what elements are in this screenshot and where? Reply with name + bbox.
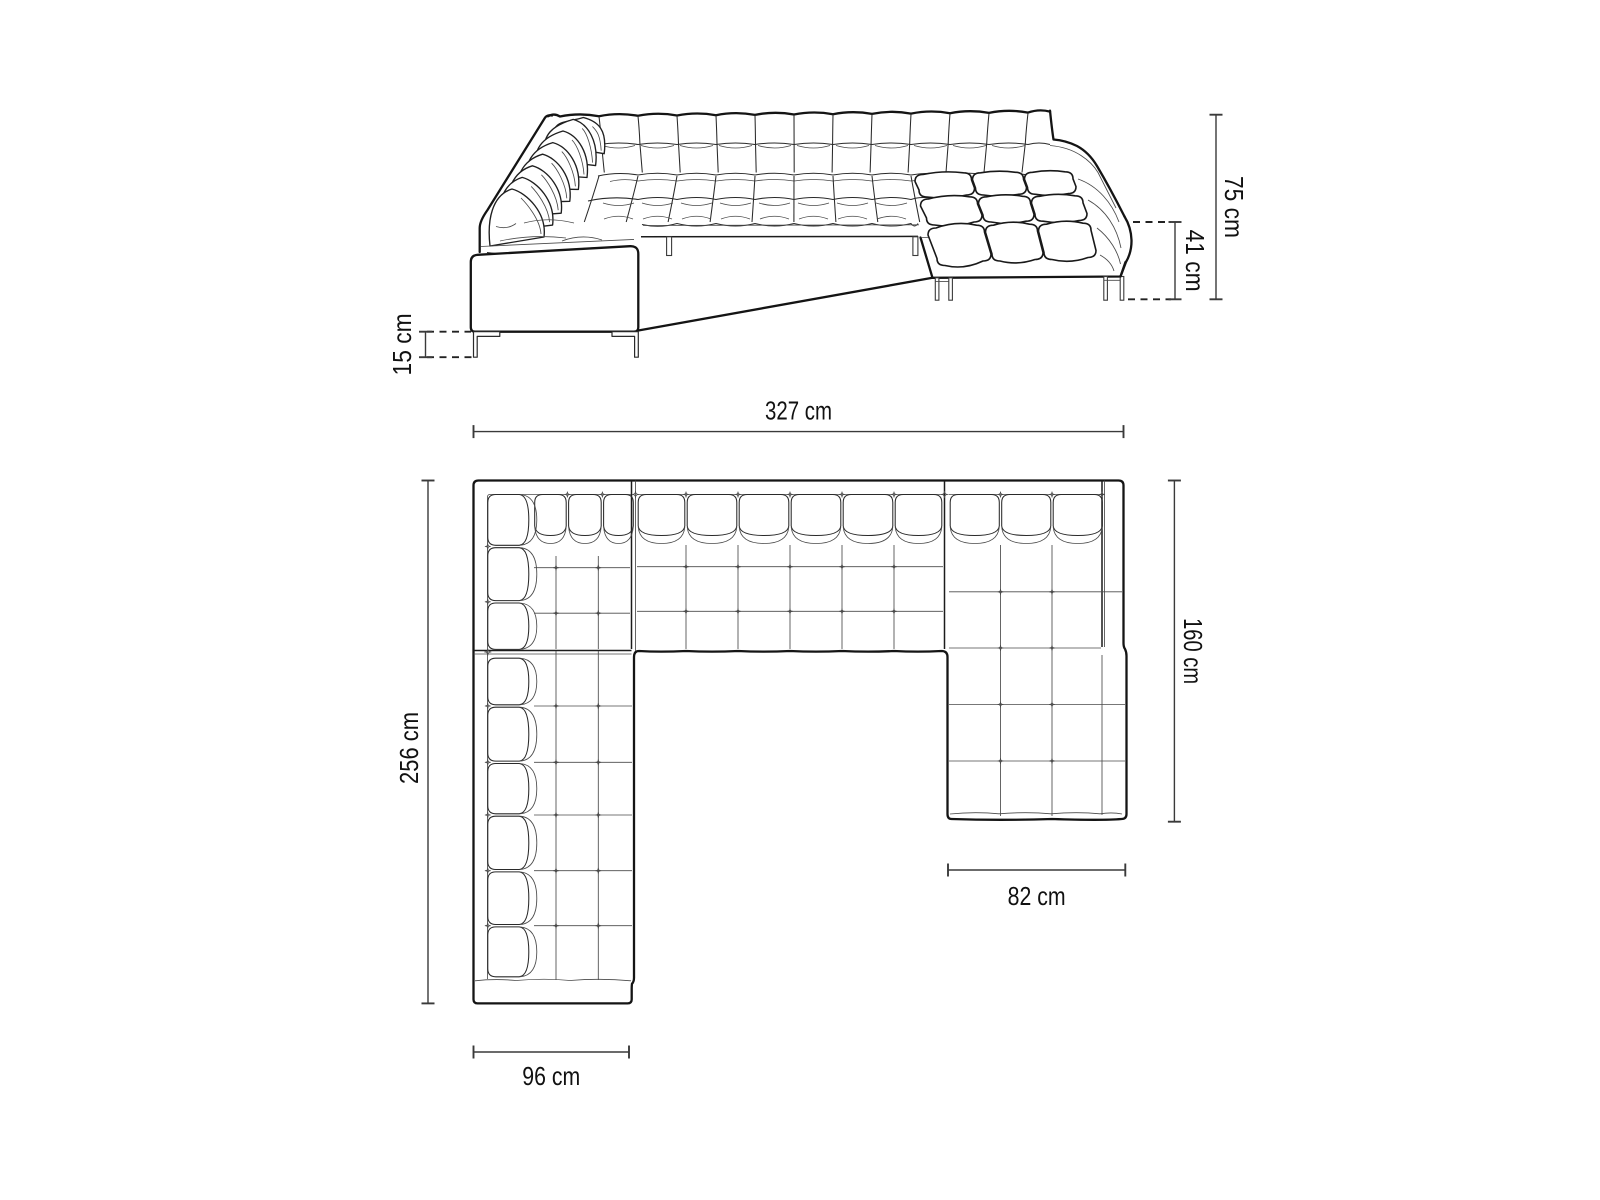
svg-text:41 cm: 41 cm (1180, 230, 1210, 292)
svg-text:256 cm: 256 cm (394, 712, 424, 784)
svg-text:327 cm: 327 cm (765, 396, 832, 426)
svg-text:160 cm: 160 cm (1178, 618, 1208, 684)
svg-text:96 cm: 96 cm (522, 1061, 580, 1091)
svg-text:75 cm: 75 cm (1219, 176, 1249, 238)
svg-text:82 cm: 82 cm (1008, 881, 1066, 911)
svg-text:15 cm: 15 cm (387, 313, 417, 375)
